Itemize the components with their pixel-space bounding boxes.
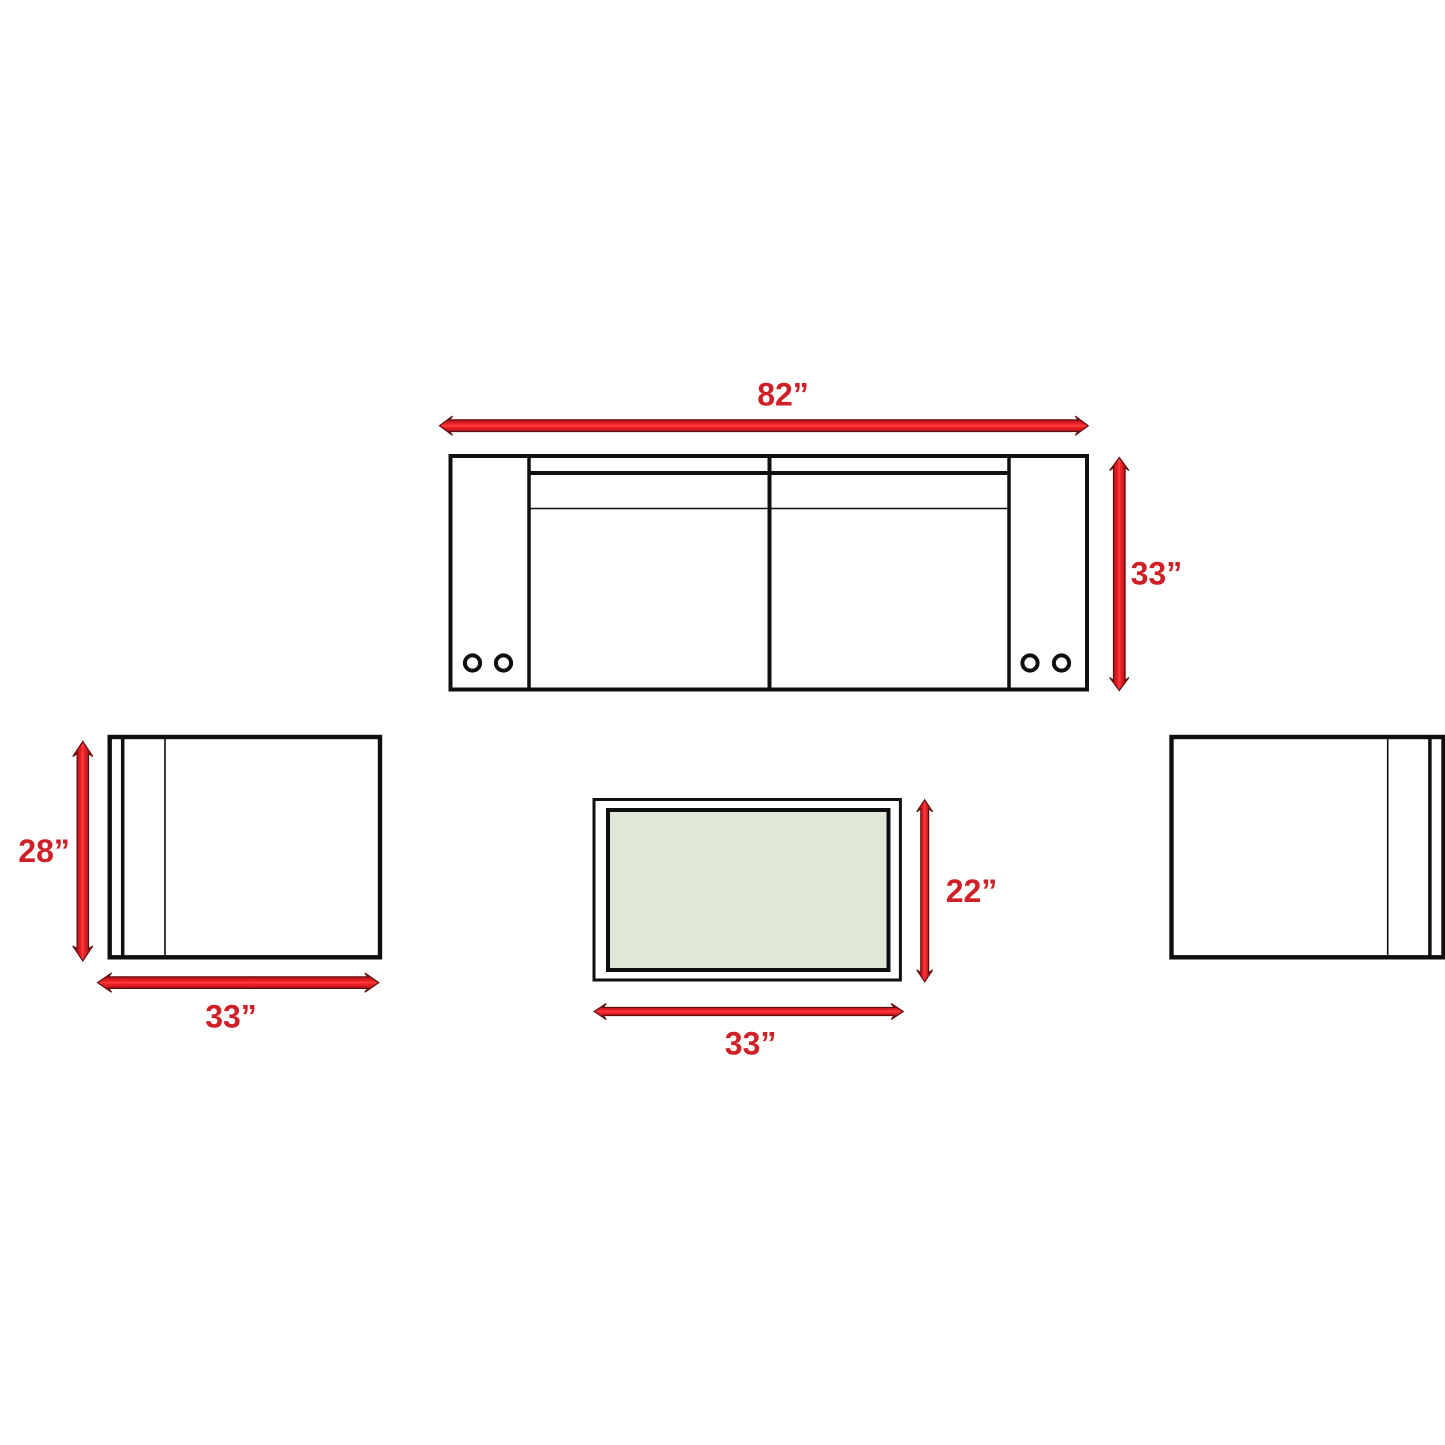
svg-text:33”: 33” [725,1026,777,1062]
svg-text:33”: 33” [205,998,257,1034]
svg-text:22”: 22” [946,873,998,909]
svg-text:82”: 82” [757,376,809,412]
svg-text:33”: 33” [1131,556,1183,592]
svg-text:28”: 28” [18,833,70,869]
